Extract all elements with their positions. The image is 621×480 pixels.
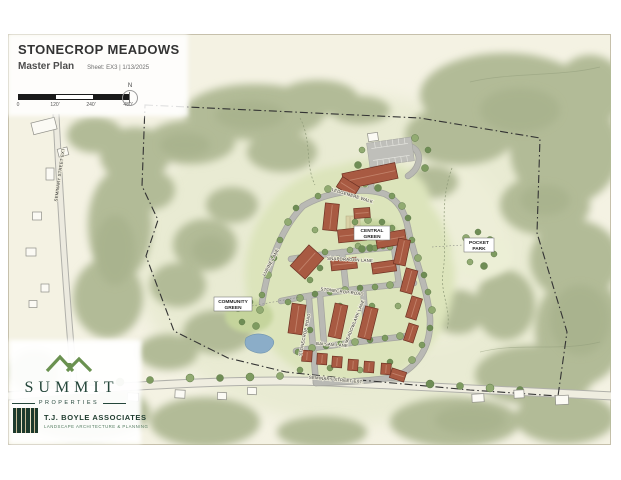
svg-text:GREEN: GREEN xyxy=(224,305,242,311)
label-pocket-park: POCKET PARK xyxy=(464,238,494,252)
scale-ticks: 0 120' 240' 480' xyxy=(18,102,128,110)
svg-text:CENTRAL: CENTRAL xyxy=(361,228,384,234)
label-community-green: COMMUNITY GREEN xyxy=(214,297,252,311)
summit-tagline: PROPERTIES xyxy=(39,400,99,406)
tjboyle-tagline: LANDSCAPE ARCHITECTURE & PLANNING xyxy=(44,424,148,429)
svg-text:GREEN: GREEN xyxy=(363,234,381,240)
plan-sheet-page: { "title_block": { "title": "STONECROP M… xyxy=(0,0,621,480)
summit-properties-logo: SUMMIT PROPERTIES xyxy=(12,351,126,406)
tjboyle-trees-icon xyxy=(13,408,38,433)
title-block: STONECROP MEADOWS Master Plan Sheet: EX3… xyxy=(18,42,180,72)
svg-text:PARK: PARK xyxy=(472,246,486,252)
summit-roofs-icon xyxy=(45,351,93,373)
sheet-info: Sheet: EX3 | 1/13/2025 xyxy=(87,65,149,71)
north-arrow: N xyxy=(121,83,139,106)
svg-text:COMMUNITY: COMMUNITY xyxy=(218,299,248,305)
plan-subtitle: Master Plan xyxy=(18,61,74,72)
svg-text:POCKET: POCKET xyxy=(469,240,489,246)
summit-name: SUMMIT xyxy=(17,379,126,397)
tjboyle-logo: T.J. BOYLE ASSOCIATES LANDSCAPE ARCHITEC… xyxy=(13,408,148,433)
label-central-green: CENTRAL GREEN xyxy=(354,226,390,240)
scale-bar xyxy=(18,94,130,100)
page-title: STONECROP MEADOWS xyxy=(18,42,180,57)
tjboyle-name: T.J. BOYLE ASSOCIATES xyxy=(44,413,148,422)
